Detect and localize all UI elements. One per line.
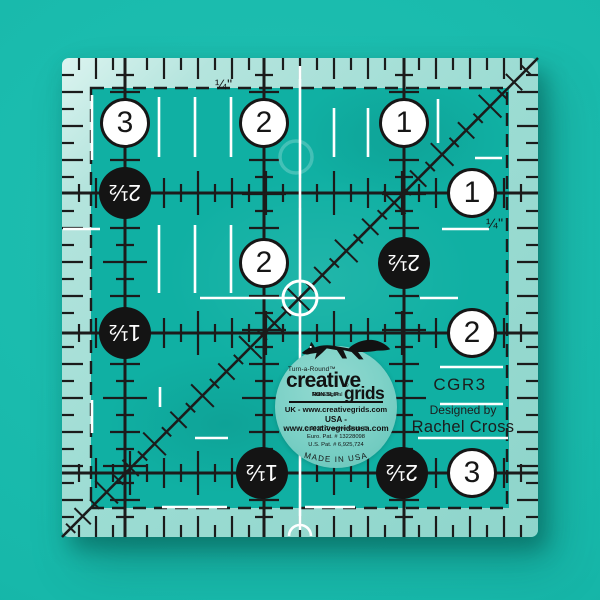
quarter-inch-label-top: ¼" [215,76,233,92]
designer-name: Rachel Cross [406,418,520,437]
measurement-circle-2: 2 [239,98,289,148]
made-in-usa-text: MADE IN USA [303,451,368,464]
measurement-circle-1: 1 [447,168,497,218]
designer-credit: Designed by Rachel Cross [406,403,520,437]
measurement-number: 1 [464,178,481,208]
measurement-circle-2: 2 [239,238,289,288]
measurement-circle-3: 3 [447,448,497,498]
measurement-number: 3 [464,458,481,488]
logo-divider-line [289,401,383,403]
measurement-number: 2 [256,108,273,138]
measurement-number: 1½ [246,462,278,485]
product-photo-stage: 3212½122½1½21½2½3 ¼" ¼" CGR3 Designed by… [0,0,600,600]
ruler-grid-graphic [0,0,600,600]
measurement-number: 2½ [109,182,141,205]
measurement-circle-1-half: 1½ [99,307,151,359]
quarter-inch-label-right: ¼" [486,215,504,231]
measurement-circle-2-half: 2½ [99,167,151,219]
made-in-usa-arc: MADE IN USA [278,446,394,476]
svg-text:MADE IN USA: MADE IN USA [303,451,368,464]
uk-website: UK - www.creativegrids.com [275,405,397,414]
model-number: CGR3 [425,375,495,395]
measurement-number: 2½ [388,252,420,275]
measurement-number: 1½ [109,322,141,345]
fox-logo-icon [301,338,393,366]
measurement-circle-2-half: 2½ [378,237,430,289]
registered-mark: ® [344,383,348,389]
measurement-circle-3: 3 [100,98,150,148]
euro-patent-line: Euro. Pat. # 13228098 [275,434,397,440]
brand-logo-disc: Turn-a-Round™ creative grids® The Origin… [275,346,397,468]
measurement-number: 1 [396,108,413,138]
measurement-number: 3 [117,108,134,138]
copyright-line: © 2015 Creative Grids ® [275,426,397,432]
designed-by-label: Designed by [406,403,520,417]
measurement-circle-2: 2 [447,308,497,358]
measurement-number: 2 [464,318,481,348]
measurement-number: 2 [256,248,273,278]
measurement-circle-1: 1 [379,98,429,148]
